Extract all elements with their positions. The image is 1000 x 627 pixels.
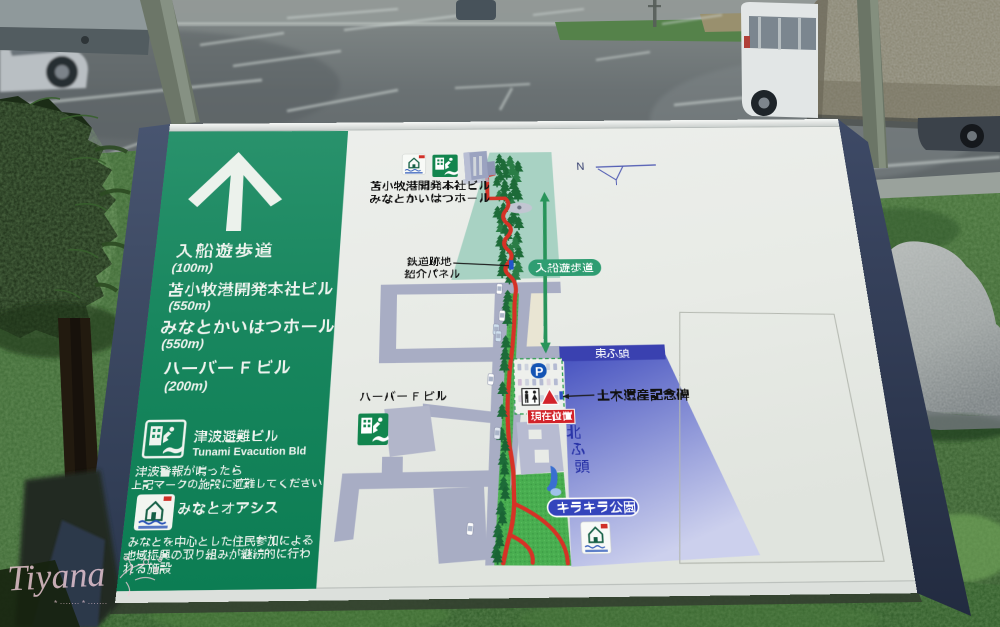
svg-text:Tiyana: Tiyana (8, 553, 106, 598)
svg-text:(550m): (550m) (161, 338, 205, 352)
svg-text:Tunami Evacution Bld: Tunami Evacution Bld (192, 445, 307, 458)
svg-text:P: P (535, 365, 544, 379)
svg-text:(550m): (550m) (168, 300, 211, 313)
svg-text:(200m): (200m) (164, 380, 209, 394)
svg-text:(100m): (100m) (171, 262, 214, 275)
svg-text:N: N (576, 162, 585, 173)
svg-text:* ······· * ·······: * ······· * ······· (54, 598, 107, 608)
